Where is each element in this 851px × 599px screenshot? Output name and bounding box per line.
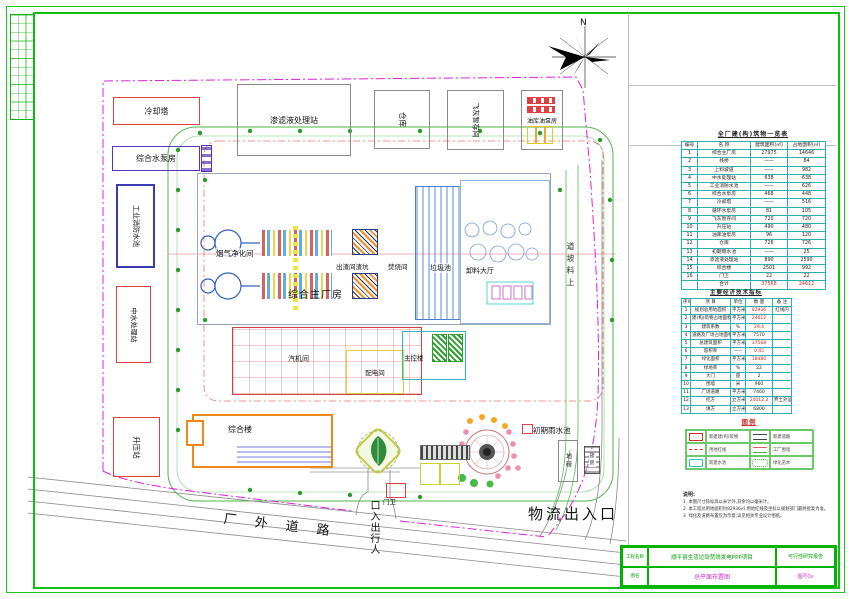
building-distribution-room: 配电间 xyxy=(346,350,404,394)
legend-grid: 新建建(构)筑物 新建道路 用地红线 工厂围墙 新建水池 绿化苗木 xyxy=(685,429,813,470)
building-label: 飞灰暂存间 xyxy=(471,103,481,138)
building-cooling-tower: 冷却塔 xyxy=(113,97,200,125)
legend-panel: 图例 新建建(构)筑物 新建道路 用地红线 工厂围墙 新建水池 绿化苗木 xyxy=(685,416,813,470)
weighbridge: 地磅 xyxy=(558,440,578,482)
building-label: 冷却塔 xyxy=(145,106,169,117)
indicators-table: 序号项 目单位数 量备 注1规划总用地面积平方米82936红线内2建(构)筑物占… xyxy=(681,298,792,414)
legend-label: 用地红线 xyxy=(706,443,750,456)
rain-pool-label: 初期雨水池 xyxy=(533,425,571,436)
building-label: 综合水泵房 xyxy=(136,153,176,164)
oil-pump-symbol xyxy=(527,97,555,104)
basketball-court xyxy=(420,463,460,485)
indicators-table-panel: 主要经济技术指标 序号项 目单位数 量备 注1规划总用地面积平方米82936红线… xyxy=(681,288,791,414)
waste-bunker xyxy=(415,186,461,320)
title-block: 工程名称 顺平县生活垃圾焚烧发电PPP项目 可行性研究报告 图名 总平面布置图 … xyxy=(620,545,837,588)
building-water-pump-house: 综合水泵房 xyxy=(112,146,200,171)
legend-symbol-factory-wall xyxy=(750,443,770,456)
boiler-unit xyxy=(352,229,378,255)
building-booster-station: 升压站 xyxy=(113,417,160,477)
right-panel-divider xyxy=(628,13,629,545)
signoff-strip xyxy=(10,14,35,120)
pedestrian-gate-label: 口入出行人 xyxy=(366,500,381,555)
building-fire-pool: 工业消防水池 xyxy=(116,184,155,268)
legend-symbol-new-road xyxy=(750,430,770,443)
legend-symbol-greenery xyxy=(750,456,770,469)
pump-house-annex xyxy=(201,145,212,172)
slag-room-label: 出渣间渣坑 xyxy=(336,261,369,271)
building-label: 配电间 xyxy=(365,367,385,377)
legend-label: 绿化苗木 xyxy=(770,456,814,469)
legend-symbol-pool xyxy=(686,456,706,469)
unloading-hall-label: 卸料大厅 xyxy=(466,266,494,276)
building-label: 油库油泵房 xyxy=(527,116,557,125)
project-name-label: 工程名称 xyxy=(622,547,648,567)
building-reclaimed-water-station: 中水处理站 xyxy=(116,286,151,363)
control-roof-hatch xyxy=(448,334,463,362)
office-wing xyxy=(186,420,204,446)
site-plan-drawing: N 冷却塔 综合水泵房 渗滤液处理站 仓库 飞灰暂存间 油库油泵房 工业消防水池… xyxy=(0,0,851,599)
control-building-label: 主控楼 xyxy=(404,352,424,362)
building-office xyxy=(192,414,333,468)
building-label: 渗滤液处理站 xyxy=(270,115,318,126)
note-line: 2. 本工程总用地面积约82936㎡,用地红线及坐标以规划部门最终批复为准。 xyxy=(683,506,833,513)
weighbridge-label: 地磅 xyxy=(564,453,573,469)
waste-pit-label: 垃圾池 xyxy=(430,263,451,273)
feed-ramp-label: 道坡料上 xyxy=(565,242,576,290)
gate-house-label: 门卫 xyxy=(383,496,396,506)
building-warehouse: 仓库 xyxy=(374,90,430,149)
turbine-room-label: 汽机间 xyxy=(288,354,309,364)
notes-panel: 说明: 1. 本图尺寸除标高以米计外,其余均以毫米计。 2. 本工程总用地面积约… xyxy=(683,492,833,520)
legend-symbol-red-line xyxy=(686,443,706,456)
north-label: N xyxy=(580,18,587,28)
right-panel-line-1 xyxy=(628,85,836,86)
notes-heading: 说明: xyxy=(683,492,833,499)
drawing-number: 图号0x xyxy=(776,567,835,587)
buildings-table-panel: 全厂建(构)筑物一览表 编号名 称建筑面积(㎡)占地面积(㎡)1综合主厂房279… xyxy=(681,129,825,290)
logistics-gate-label: 物流出入口 xyxy=(528,503,618,524)
weigh-room-label: 磅房 xyxy=(589,453,596,467)
legend-label: 新建水池 xyxy=(706,456,750,469)
control-roof-hatch xyxy=(432,334,447,362)
buildings-table-title: 全厂建(构)筑物一览表 xyxy=(681,129,825,138)
legend-label: 新建道路 xyxy=(770,430,814,443)
building-label: 工业消防水池 xyxy=(131,205,141,247)
building-label: 仓库 xyxy=(397,112,408,127)
flue-gas-room-label: 烟气净化间 xyxy=(216,248,254,259)
weigh-room: 磅房 xyxy=(584,446,600,474)
design-stage: 可行性研究报告 xyxy=(776,547,835,567)
rain-pool-marker xyxy=(522,424,533,434)
incinerator-room-label: 焚烧间 xyxy=(388,261,408,271)
legend-title: 图例 xyxy=(685,416,813,426)
building-leachate-station: 渗滤液处理站 xyxy=(237,84,351,156)
unloading-hall-outline xyxy=(460,180,550,324)
building-fly-ash-room: 飞灰暂存间 xyxy=(447,90,504,150)
note-line: 1. 本图尺寸除标高以米计外,其余均以毫米计。 xyxy=(683,499,833,506)
legend-label: 工厂围墙 xyxy=(770,443,814,456)
drawing-name: 总平面布置图 xyxy=(648,567,776,587)
legend-symbol-new-building xyxy=(686,430,706,443)
boiler-unit xyxy=(352,273,378,299)
indicators-table-title: 主要经济技术指标 xyxy=(681,288,791,296)
legend-label: 新建建(构)筑物 xyxy=(706,430,750,443)
project-name: 顺平县生活垃圾焚烧发电PPP项目 xyxy=(648,547,776,567)
pergola xyxy=(420,445,470,460)
note-line: 3. 绿化及道路布置仅为示意,详见相关专业设计图纸。 xyxy=(683,513,833,520)
oil-pump-symbol xyxy=(527,106,555,113)
buildings-table: 编号名 称建筑面积(㎡)占地面积(㎡)1综合主厂房27975146462栈桥——… xyxy=(681,141,826,290)
main-plant-label: 综合主厂房 xyxy=(288,286,343,301)
drawing-name-label: 图名 xyxy=(622,567,648,587)
building-label: 中水处理站 xyxy=(129,307,139,342)
oil-tank-symbol xyxy=(527,126,553,144)
office-building-label: 综合楼 xyxy=(228,424,252,435)
building-label: 升压站 xyxy=(131,436,142,459)
